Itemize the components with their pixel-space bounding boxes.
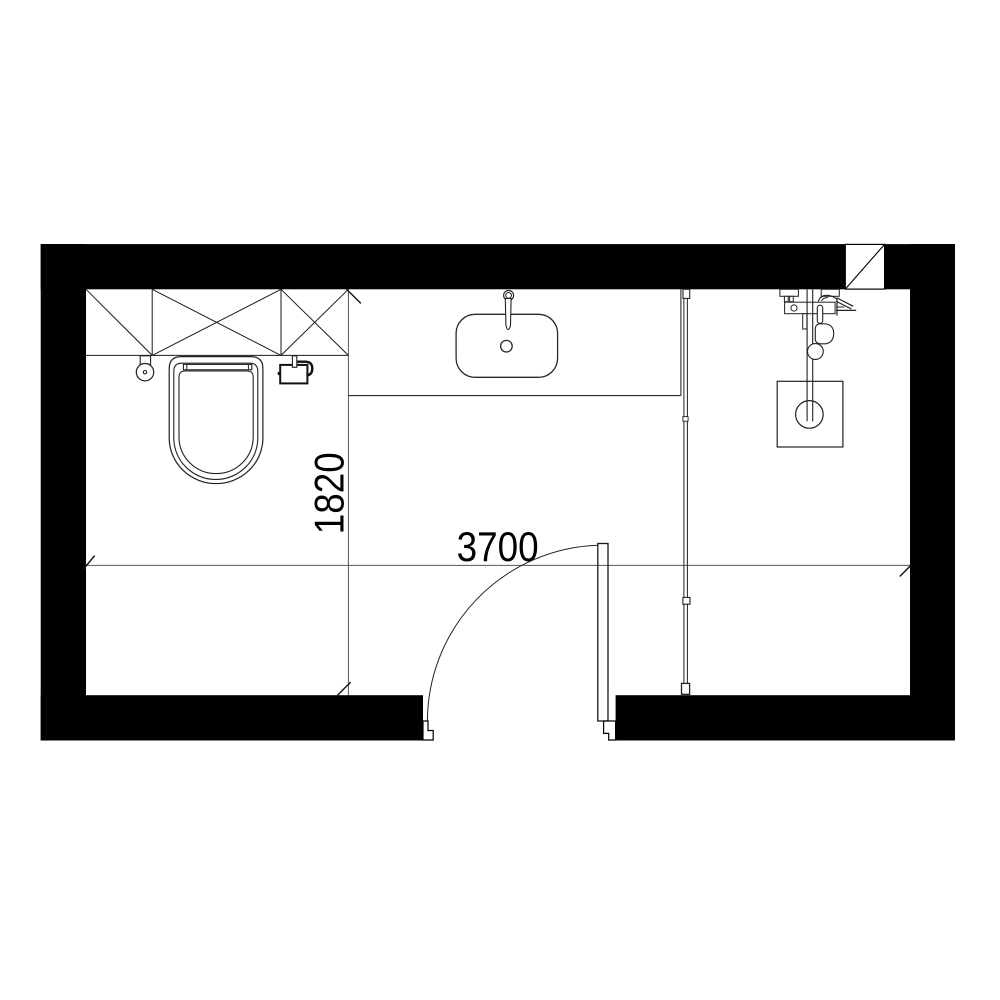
svg-text:3700: 3700: [457, 523, 539, 570]
svg-text:1820: 1820: [306, 452, 353, 534]
